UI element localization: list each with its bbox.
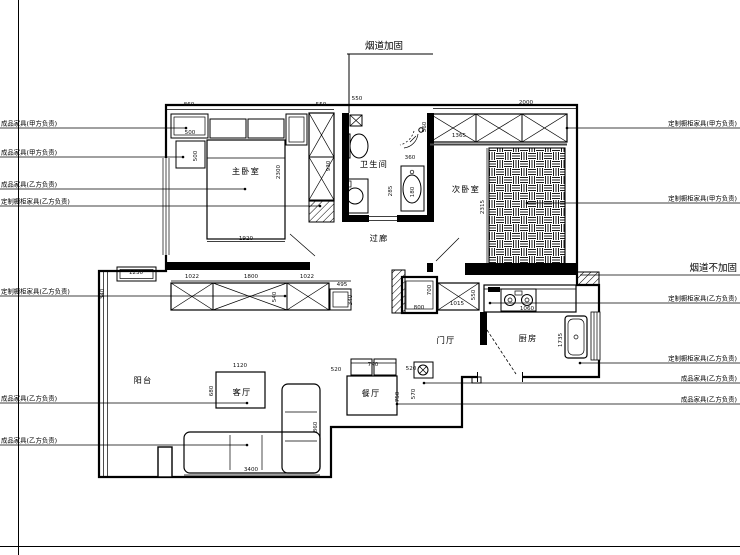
dimension-10: 560 [422, 121, 428, 132]
dimension-28: 1735 [558, 332, 564, 347]
annotation-right-5: 成品家具(乙方负责) [681, 374, 737, 383]
leader-dot [244, 188, 247, 191]
room-label-2: 次卧室 [452, 184, 480, 194]
leader-dot [284, 295, 287, 298]
dimension-12: 285 [388, 185, 394, 196]
dimension-23: 800 [414, 305, 425, 311]
wall-bed2-south-a [427, 263, 433, 272]
dimension-8: 2300 [276, 164, 282, 179]
room-label-4: 门厅 [437, 335, 456, 345]
dimension-37: 570 [411, 388, 417, 399]
dimension-5: 2000 [519, 100, 534, 106]
dimension-30: 680 [209, 385, 215, 396]
dimension-4: 550 [352, 96, 363, 102]
room-label-7: 客厅 [233, 387, 252, 397]
flue-annotation-top: 烟道加固 [347, 40, 433, 113]
leader-dot [246, 402, 249, 405]
dimension-9: 1920 [239, 236, 254, 242]
annotation-left-4: 定制橱柜家具(乙方负责) [1, 287, 70, 296]
leader-dot [246, 444, 249, 447]
room-label-6: 阳台 [134, 375, 153, 385]
floor-plan-sheet: 烟道加固 成品家具(甲方负责)成品家具(甲方负责)成品家具(乙方负责)定制橱柜家… [0, 0, 740, 555]
room-label-3: 过廊 [370, 233, 389, 243]
dimension-3: 550 [316, 102, 327, 108]
floor-plan-drawing: 烟道加固 成品家具(甲方负责)成品家具(甲方负责)成品家具(乙方负责)定制橱柜家… [0, 0, 740, 555]
dimension-16: 340 [100, 288, 106, 299]
wall-master-south [166, 262, 310, 270]
leader-dot [185, 127, 188, 130]
flue-shaft [309, 200, 334, 222]
room-label-1: 卫生间 [360, 159, 388, 169]
gas-meter [414, 362, 433, 378]
door-bedroom2 [436, 238, 459, 261]
door-swing-dashed [487, 330, 516, 374]
room-label-0: 主卧室 [232, 166, 260, 176]
annotation-right-6: 成品家具(乙方负责) [681, 395, 737, 404]
wardrobe-bedroom2 [430, 114, 567, 145]
dimension-31: 3400 [244, 467, 259, 473]
dimension-2: 500 [193, 150, 199, 161]
dimension-24: 700 [427, 284, 433, 295]
leader-dot [182, 156, 185, 159]
wardrobe-row [171, 283, 329, 310]
dimension-34: 520 [331, 367, 342, 373]
pillow [248, 119, 284, 138]
nightstand [171, 114, 307, 168]
pillow [210, 119, 246, 138]
annotation-left-2: 成品家具(乙方负责) [1, 180, 57, 189]
leader-dot [423, 382, 426, 385]
annotation-right-4: 定制橱柜家具(乙方负责) [668, 354, 737, 363]
annotation-right-3: 定制橱柜家具(乙方负责) [668, 294, 737, 303]
leader-dot [319, 205, 322, 208]
dimension-25: 1015 [450, 301, 465, 307]
dimension-1: 500 [185, 130, 196, 136]
dimension-21: 540 [272, 291, 278, 302]
sofa [184, 384, 320, 473]
dimension-14: 2315 [480, 199, 486, 214]
annotation-left-6: 成品家具(乙方负责) [1, 436, 57, 445]
dimension-32: 860 [313, 421, 319, 432]
annotation-left-3: 定制橱柜家具(乙方负责) [1, 197, 70, 206]
dimension-17: 1022 [185, 274, 199, 280]
dimension-6: 1365 [452, 133, 467, 139]
wall-bath-south-a [342, 215, 369, 222]
dimension-19: 1022 [300, 274, 314, 280]
kitchen-window [591, 312, 600, 360]
tatami-bed [489, 148, 565, 265]
door-master [290, 234, 315, 256]
dimension-29: 1120 [233, 363, 248, 369]
leader-dot [579, 362, 582, 365]
flue-top-label: 烟道加固 [365, 40, 403, 52]
wall-bath-south-b [397, 215, 434, 222]
dimension-36: 520 [406, 366, 417, 372]
flue-right-label: 烟道不加固 [689, 262, 737, 274]
annotation-left-1: 成品家具(甲方负责) [1, 148, 57, 157]
annotation-right-0: 定制橱柜家具(甲方负责) [668, 119, 737, 128]
dimension-26: 550 [471, 289, 477, 300]
room-label-8: 餐厅 [362, 388, 381, 398]
dimension-27: 1060 [520, 306, 535, 312]
shower-icon [400, 128, 423, 148]
dimension-13: 180 [410, 186, 416, 197]
bath-flue-shaft [350, 115, 362, 126]
dimension-15: 1230 [129, 270, 144, 276]
leader-dot [526, 202, 529, 205]
wall-kitchen-west [480, 312, 487, 345]
leader-dot [489, 302, 492, 305]
dimension-0: 860 [184, 102, 195, 108]
flue-duct [577, 272, 599, 285]
annotation-right-1: 定制橱柜家具(甲方负责) [668, 194, 737, 203]
dimension-22: 340 [348, 294, 354, 305]
wall-balcony-column [158, 447, 172, 477]
annotation-left-5: 成品家具(乙方负责) [1, 394, 57, 403]
room-label-5: 厨房 [519, 333, 538, 343]
dimension-33: 740 [368, 362, 379, 368]
dimension-35: 750 [395, 391, 401, 402]
sheet-frame [0, 0, 740, 555]
dimension-18: 1800 [244, 274, 259, 280]
leader-dot [566, 127, 569, 130]
dimension-7: 930 [326, 160, 332, 171]
dimension-11: 360 [405, 155, 416, 161]
dimension-20: 495 [337, 282, 348, 288]
kitchen-sink [565, 316, 587, 358]
annotation-left-0: 成品家具(甲方负责) [1, 119, 57, 128]
bed [207, 119, 285, 239]
